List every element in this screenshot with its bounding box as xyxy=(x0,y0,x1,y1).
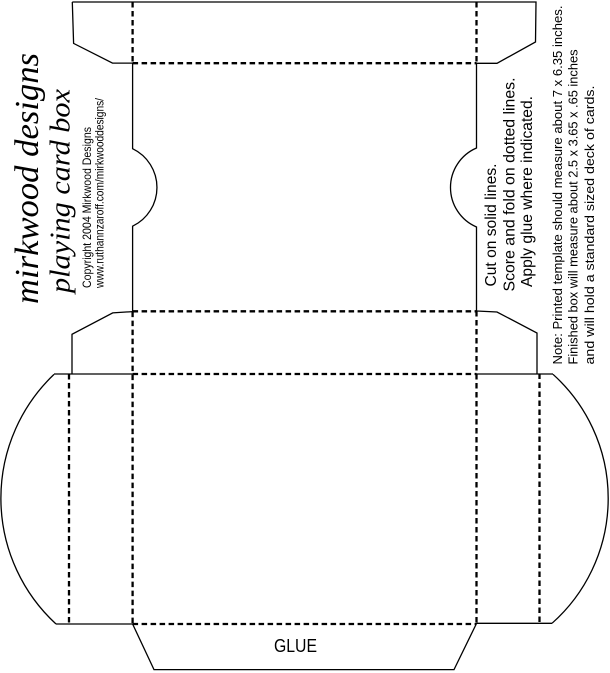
svg-text:Apply glue where indicated.: Apply glue where indicated. xyxy=(519,96,536,287)
svg-text:mirkwood designs: mirkwood designs xyxy=(9,53,46,304)
svg-text:Note: Printed template should: Note: Printed template should measure ab… xyxy=(550,6,565,365)
svg-text:playing card box: playing card box xyxy=(46,88,77,295)
svg-text:Cut on solid lines.: Cut on solid lines. xyxy=(483,164,500,287)
svg-text:and will hold a standard sized: and will hold a standard sized deck of c… xyxy=(582,86,597,365)
svg-text:Finished box will measure abou: Finished box will measure about 2.5 x 3.… xyxy=(566,49,581,364)
svg-text:Score and fold on dotted lines: Score and fold on dotted lines. xyxy=(502,78,519,292)
svg-text:www.ruthannzaroff.com/mirkwood: www.ruthannzaroff.com/mirkwooddesigns/ xyxy=(93,97,107,288)
svg-text:GLUE: GLUE xyxy=(274,636,317,656)
